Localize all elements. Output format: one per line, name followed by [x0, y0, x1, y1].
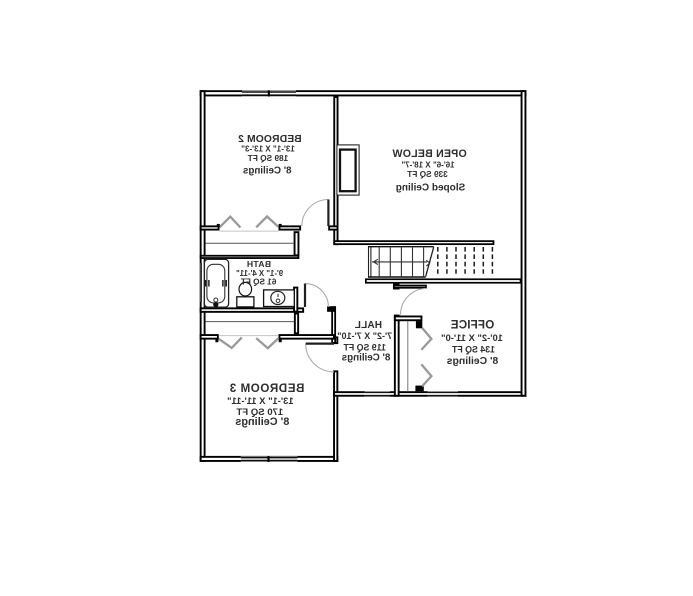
svg-text:8' Ceilings: 8' Ceilings — [341, 353, 390, 364]
svg-text:BEDROOM 2: BEDROOM 2 — [238, 134, 302, 145]
svg-text:OFFICE: OFFICE — [450, 319, 494, 332]
svg-text:7'-2" X 7'-10": 7'-2" X 7'-10" — [337, 331, 392, 341]
svg-text:8' Ceilings: 8' Ceilings — [242, 166, 291, 177]
svg-text:119 SQ FT: 119 SQ FT — [343, 342, 386, 352]
svg-text:339 SQ FT: 339 SQ FT — [407, 169, 448, 179]
svg-text:BATH: BATH — [247, 259, 271, 269]
svg-text:9'-1" X 4'-11": 9'-1" X 4'-11" — [236, 269, 283, 278]
svg-text:189 SQ FT: 189 SQ FT — [248, 153, 289, 163]
svg-text:BEDROOM 3: BEDROOM 3 — [229, 382, 304, 395]
svg-text:13'-1" X 11'-11": 13'-1" X 11'-11" — [227, 395, 294, 406]
svg-text:134 SQ FT: 134 SQ FT — [451, 344, 495, 354]
svg-text:Sloped Ceiling: Sloped Ceiling — [396, 183, 465, 194]
svg-text:HALL: HALL — [355, 320, 382, 331]
svg-text:61 SQ FT: 61 SQ FT — [241, 278, 277, 287]
svg-text:8' Ceilings: 8' Ceilings — [447, 356, 499, 367]
svg-text:OPEN BELOW: OPEN BELOW — [392, 148, 466, 160]
svg-text:8' Ceilings: 8' Ceilings — [235, 416, 289, 428]
svg-text:10'-2" X 11'-0": 10'-2" X 11'-0" — [441, 332, 503, 343]
